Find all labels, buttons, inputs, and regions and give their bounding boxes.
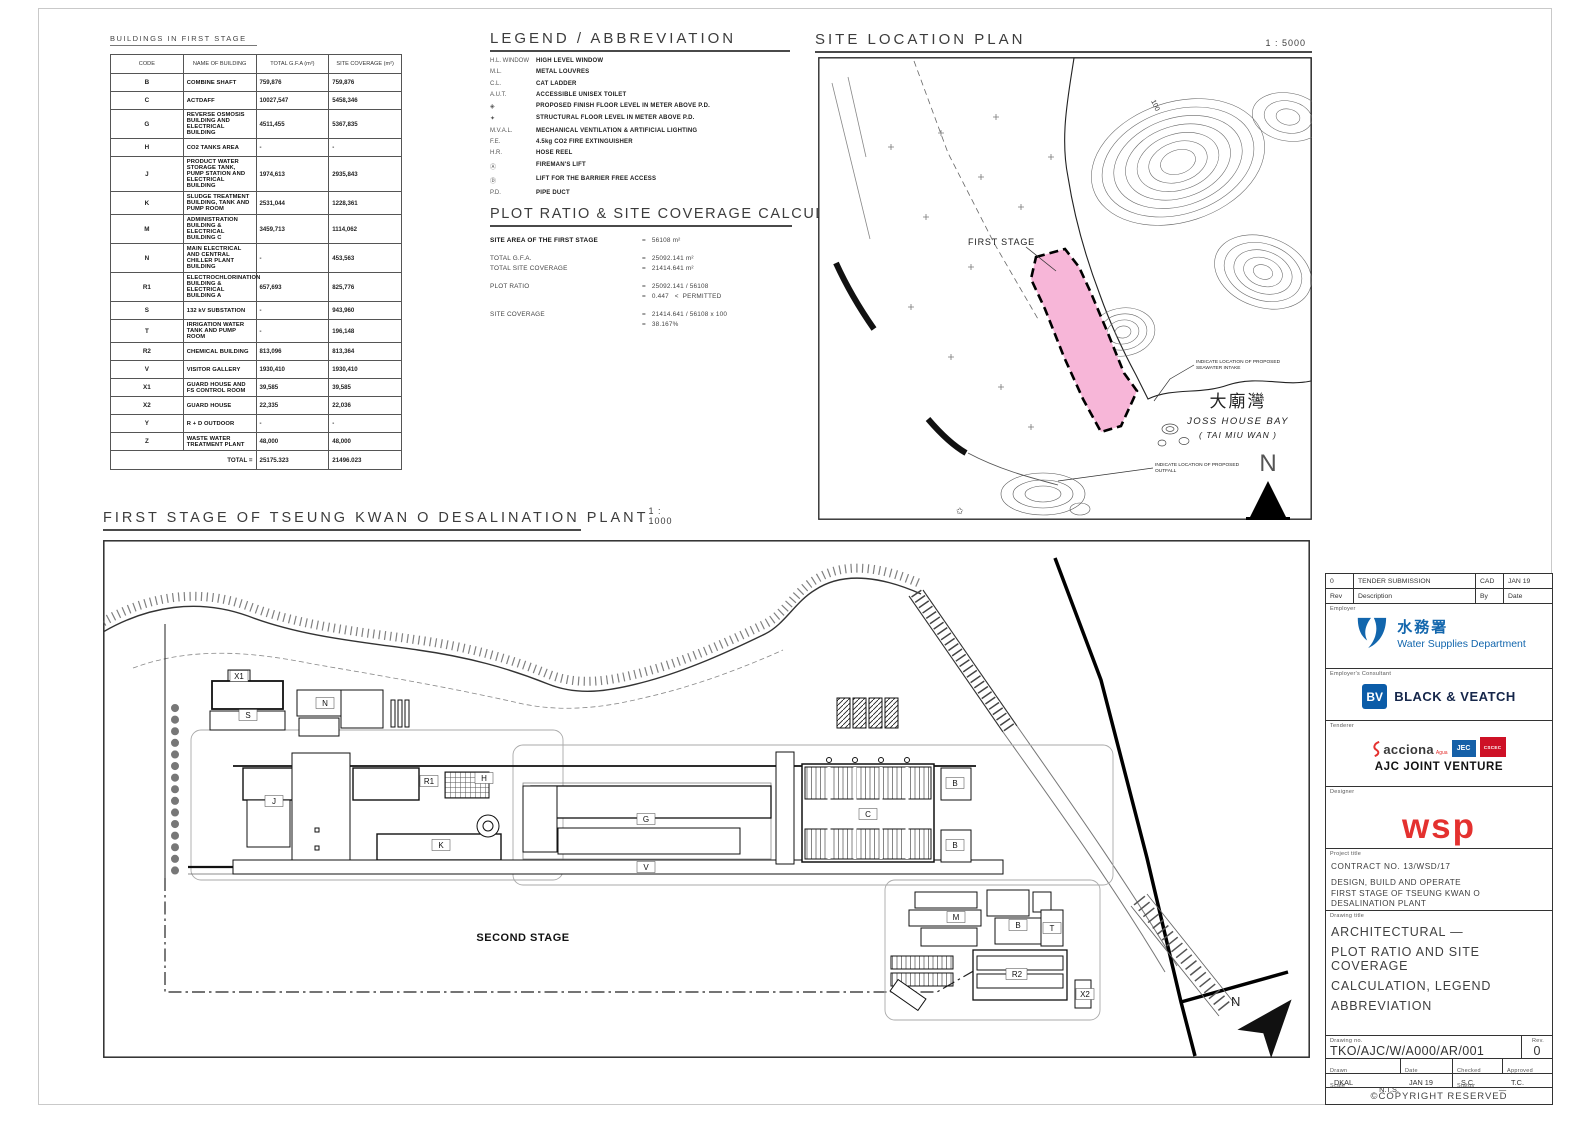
meta-row-2: Scale N.T.S. Status — xyxy=(1326,1074,1552,1088)
intake-note-line1: INDICATE LOCATION OF PROPOSED xyxy=(1196,359,1281,365)
calc-label: SITE COVERAGE xyxy=(490,311,642,318)
legend-title: LEGEND / ABBREVIATION xyxy=(490,30,736,47)
building-name: ELECTROCHLORINATION BUILDING & ELECTRICA… xyxy=(183,273,256,302)
plan-label-h: H xyxy=(481,774,487,783)
building-code: M xyxy=(111,215,184,244)
project-line3: DESALINATION PLANT xyxy=(1331,899,1552,908)
table-row: Z WASTE WATER TREATMENT PLANT 48,000 48,… xyxy=(111,433,402,451)
plan-label-m: M xyxy=(953,913,960,922)
drawn-label: Drawn xyxy=(1326,1066,1347,1074)
drawing-title-line1: ARCHITECTURAL — xyxy=(1331,925,1552,939)
acciona-leaf-icon xyxy=(1372,741,1381,757)
building-gfa: - xyxy=(256,139,329,157)
legend-item: Ⓓ LIFT FOR THE BARRIER FREE ACCESS xyxy=(490,176,790,185)
employer-name-chinese: 水務署 xyxy=(1397,616,1526,637)
legend-abbr: ✦ xyxy=(490,115,536,122)
acciona-logo: acciona Agua xyxy=(1372,741,1447,757)
building-name: CHEMICAL BUILDING xyxy=(183,343,256,361)
building-code: B xyxy=(111,74,184,92)
outfall-note-line2: OUTFALL xyxy=(1155,468,1177,474)
building-m-1 xyxy=(915,892,977,908)
wsp-logo: wsp xyxy=(1326,807,1552,847)
site-location-plan-title: SITE LOCATION PLAN xyxy=(815,31,1025,48)
legend-abbr: M.V.A.L. xyxy=(490,128,536,134)
building-code: X2 xyxy=(111,397,184,415)
building-name: R + D OUTDOOR xyxy=(183,415,256,433)
building-coverage: 1114,062 xyxy=(329,215,402,244)
buildings-table-body: B COMBINE SHAFT 759,876 759,876 C ACTDAF… xyxy=(111,74,402,451)
building-j-2 xyxy=(247,800,290,847)
drawing-number-section: Drawing no. TKO/AJC/W/A000/AR/001 Rev. 0 xyxy=(1326,1036,1552,1059)
legend-desc: HIGH LEVEL WINDOW xyxy=(536,58,603,64)
north-base xyxy=(1246,517,1290,520)
calc-value: = 0.447 < PERMITTED xyxy=(642,293,721,300)
calc-value: = 56108 m² xyxy=(642,237,680,244)
building-code: S xyxy=(111,302,184,320)
project-title-label: Project title xyxy=(1326,849,1552,857)
legend-abbr: P.D. xyxy=(490,190,536,196)
building-name: SLUDGE TREATMENT BUILDING, TANK AND PUMP… xyxy=(183,192,256,215)
table-row: Y R + D OUTDOOR - - xyxy=(111,415,402,433)
building-coverage: 453,563 xyxy=(329,244,402,273)
rev-label: Rev. xyxy=(1522,1036,1552,1044)
legend-desc: PROPOSED FINISH FLOOR LEVEL IN METER ABO… xyxy=(536,103,710,110)
table-row: S 132 kV SUBSTATION - 943,960 xyxy=(111,302,402,320)
building-name: 132 kV SUBSTATION xyxy=(183,302,256,320)
approved-label: Approved xyxy=(1503,1066,1533,1074)
legend-item: M.V.A.L. MECHANICAL VENTILATION & ARTIFI… xyxy=(490,128,790,134)
desc-col-label: Description xyxy=(1354,589,1476,604)
building-coverage: 48,000 xyxy=(329,433,402,451)
building-code: G xyxy=(111,110,184,139)
employer-section: Employer 水務署 Water Supplies Department xyxy=(1326,604,1552,669)
table-row: R1 ELECTROCHLORINATION BUILDING & ELECTR… xyxy=(111,273,402,302)
building-code: X1 xyxy=(111,379,184,397)
bay-name-chinese: 大廟灣 xyxy=(1210,392,1267,411)
jec-logo: JEC xyxy=(1452,740,1476,757)
acciona-agua: Agua xyxy=(1436,750,1448,756)
plan-label-r1: R1 xyxy=(424,777,435,786)
buildings-table: CODE NAME OF BUILDING TOTAL G.F.A (m²) S… xyxy=(110,54,402,470)
drawing-title-line4: ABBREVIATION xyxy=(1331,999,1552,1013)
legend-abbr: C.L. xyxy=(490,81,536,87)
main-plan-scale: 1 : 1000 xyxy=(648,506,672,526)
bay-name-sub: ( TAI MIU WAN ) xyxy=(1199,430,1277,440)
main-plan-title: FIRST STAGE OF TSEUNG KWAN O DESALINATIO… xyxy=(103,510,648,526)
building-r1 xyxy=(353,768,419,800)
calc-row: TOTAL G.F.A. = 25092.141 m² xyxy=(490,255,800,262)
building-name: GUARD HOUSE AND FS CONTROL ROOM xyxy=(183,379,256,397)
intake-note-line2: SEAWATER INTAKE xyxy=(1196,365,1241,371)
col-gfa: TOTAL G.F.A (m²) xyxy=(256,55,329,74)
col-coverage: SITE COVERAGE (m²) xyxy=(329,55,402,74)
building-gfa: - xyxy=(256,302,329,320)
building-gfa: - xyxy=(256,320,329,343)
building-name: WASTE WATER TREATMENT PLANT xyxy=(183,433,256,451)
building-gfa: 813,096 xyxy=(256,343,329,361)
black-veatch-logo: BV xyxy=(1362,684,1387,709)
plan-label-j: J xyxy=(272,797,276,806)
legend-item: A.U.T. ACCESSIBLE UNISEX TOILET xyxy=(490,92,790,98)
checked-label: Checked xyxy=(1453,1066,1481,1074)
main-plan-header: FIRST STAGE OF TSEUNG KWAN O DESALINATIO… xyxy=(103,506,581,531)
building-c-band-top xyxy=(805,767,931,799)
building-c-left xyxy=(776,752,794,864)
plan-label-x1: X1 xyxy=(234,672,244,681)
table-row: T IRRIGATION WATER TANK AND PUMP ROOM - … xyxy=(111,320,402,343)
legend-desc: METAL LOUVRES xyxy=(536,69,589,75)
designer-label: Designer xyxy=(1326,787,1552,795)
project-line1: DESIGN, BUILD AND OPERATE xyxy=(1331,878,1552,887)
drawing-number: TKO/AJC/W/A000/AR/001 xyxy=(1326,1044,1521,1058)
table-row: M ADMINISTRATION BUILDING & ELECTRICAL B… xyxy=(111,215,402,244)
building-m-2 xyxy=(909,910,981,926)
table-row: N MAIN ELECTRICAL AND CENTRAL CHILLER PL… xyxy=(111,244,402,273)
plan-label-s: S xyxy=(245,711,250,720)
calc-label xyxy=(490,321,642,328)
building-g-lower xyxy=(558,828,740,854)
calc-label: PLOT RATIO xyxy=(490,283,642,290)
building-code: R1 xyxy=(111,273,184,302)
tenderer-name: AJC JOINT VENTURE xyxy=(1326,761,1552,773)
plan-label-x2: X2 xyxy=(1080,990,1090,999)
legend-item: H.L. WINDOW HIGH LEVEL WINDOW xyxy=(490,58,790,64)
date-col-label: Date xyxy=(1504,589,1552,604)
calc-value: = 25092.141 m² xyxy=(642,255,694,262)
calc-value: = 38.167% xyxy=(642,321,679,328)
plan-label-b1: B xyxy=(952,779,957,788)
building-code: Z xyxy=(111,433,184,451)
building-gfa: 39,585 xyxy=(256,379,329,397)
building-code: T xyxy=(111,320,184,343)
building-coverage: 196,148 xyxy=(329,320,402,343)
building-coverage: - xyxy=(329,415,402,433)
table-row: J PRODUCT WATER STORAGE TANK, PUMP STATI… xyxy=(111,157,402,192)
calc-value: = 21414.641 / 56108 x 100 xyxy=(642,311,727,318)
calc-value: = 25092.141 / 56108 xyxy=(642,283,709,290)
table-row: X2 GUARD HOUSE 22,335 22,036 xyxy=(111,397,402,415)
legend-desc: 4.5kg CO2 FIRE EXTINGUISHER xyxy=(536,139,633,145)
drawing-title-label: Drawing title xyxy=(1326,911,1552,919)
calc-label: TOTAL G.F.A. xyxy=(490,255,642,262)
legend-abbr: A.U.T. xyxy=(490,92,536,98)
plan-label-k: K xyxy=(438,841,444,850)
by-col-label: By xyxy=(1476,589,1504,604)
building-gfa: 1930,410 xyxy=(256,361,329,379)
plan-label-g: G xyxy=(643,815,649,824)
total-label: TOTAL = xyxy=(111,451,257,470)
site-location-plan-scale: 1 : 5000 xyxy=(1265,38,1306,48)
plan-label-b3: B xyxy=(1015,921,1020,930)
wsd-logo xyxy=(1352,616,1390,650)
revision-header-row: Rev Description By Date xyxy=(1326,589,1552,604)
building-coverage: 22,036 xyxy=(329,397,402,415)
building-code: J xyxy=(111,157,184,192)
copyright-row: ©COPYRIGHT RESERVED xyxy=(1326,1088,1552,1104)
building-coverage: 1930,410 xyxy=(329,361,402,379)
calc-row: SITE AREA OF THE FIRST STAGE = 56108 m² xyxy=(490,237,800,244)
table-row: V VISITOR GALLERY 1930,410 1930,410 xyxy=(111,361,402,379)
legend-desc: ACCESSIBLE UNISEX TOILET xyxy=(536,92,626,98)
rev-value: 0 xyxy=(1522,1044,1552,1058)
table-row: H CO2 TANKS AREA - - xyxy=(111,139,402,157)
building-gfa: 48,000 xyxy=(256,433,329,451)
calculation-rows: SITE AREA OF THE FIRST STAGE = 56108 m² … xyxy=(490,237,800,328)
total-gfa: 25175.323 xyxy=(256,451,329,470)
building-b-2 xyxy=(1033,892,1051,912)
rev-number: 0 xyxy=(1326,574,1354,589)
project-line2: FIRST STAGE OF TSEUNG KWAN O xyxy=(1331,889,1552,898)
rev-col-label: Rev xyxy=(1326,589,1354,604)
building-code: Y xyxy=(111,415,184,433)
building-c-band-bottom xyxy=(805,829,931,859)
designer-section: Designer wsp xyxy=(1326,787,1552,849)
legend-item: P.D. PIPE DUCT xyxy=(490,190,790,196)
building-coverage: 943,960 xyxy=(329,302,402,320)
drawing-title-section: Drawing title ARCHITECTURAL — PLOT RATIO… xyxy=(1326,911,1552,1036)
employer-label: Employer xyxy=(1326,604,1552,612)
building-gfa: 4511,455 xyxy=(256,110,329,139)
building-coverage: 825,776 xyxy=(329,273,402,302)
parking-strip-1 xyxy=(891,956,953,969)
calc-value: = 21414.641 m² xyxy=(642,265,694,272)
building-code: R2 xyxy=(111,343,184,361)
rev-description: TENDER SUBMISSION xyxy=(1354,574,1476,589)
buildings-table-title: BUILDINGS IN FIRST STAGE xyxy=(110,34,257,46)
table-row: X1 GUARD HOUSE AND FS CONTROL ROOM 39,58… xyxy=(111,379,402,397)
legend-abbr: H.L. WINDOW xyxy=(490,58,536,64)
table-row: C ACTDAFF 10027,547 5458,346 xyxy=(111,92,402,110)
building-j-3 xyxy=(292,753,350,868)
calculation-section: PLOT RATIO & SITE COVERAGE CALCULATION: … xyxy=(490,206,800,328)
main-site-plan: X1 S N J R1 H K G V C B B M B T R2 X2 SE… xyxy=(103,540,1310,1058)
legend-desc: CAT LADDER xyxy=(536,81,577,87)
calc-row: SITE COVERAGE = 21414.641 / 56108 x 100 xyxy=(490,311,800,318)
legend-abbr: Ⓓ xyxy=(490,176,536,185)
plan-label-v: V xyxy=(643,863,649,872)
calc-row: = 38.167% xyxy=(490,321,800,328)
revision-entry-row: 0 TENDER SUBMISSION CAD JAN 19 xyxy=(1326,574,1552,589)
legend-desc: FIREMAN'S LIFT xyxy=(536,162,586,171)
table-row: K SLUDGE TREATMENT BUILDING, TANK AND PU… xyxy=(111,192,402,215)
building-b-1 xyxy=(987,890,1029,916)
building-coverage: 5458,346 xyxy=(329,92,402,110)
star-marker: ✩ xyxy=(956,506,964,516)
employer-name-english: Water Supplies Department xyxy=(1397,638,1526,650)
tenderer-label: Tenderer xyxy=(1326,721,1552,729)
legend-abbr: Ⓐ xyxy=(490,162,536,171)
calc-label: SITE AREA OF THE FIRST STAGE xyxy=(490,237,642,244)
legend-item: ✦ STRUCTURAL FLOOR LEVEL IN METER ABOVE … xyxy=(490,115,790,122)
building-n-2 xyxy=(341,690,383,728)
cscec-logo: CSCEC xyxy=(1480,737,1506,757)
building-gfa: 3459,713 xyxy=(256,215,329,244)
legend-item: Ⓐ FIREMAN'S LIFT xyxy=(490,162,790,171)
plan-label-r2: R2 xyxy=(1012,970,1023,979)
drawing-no-label: Drawing no. xyxy=(1326,1036,1521,1044)
calc-label xyxy=(490,293,642,300)
building-coverage: 759,876 xyxy=(329,74,402,92)
building-gfa: 22,335 xyxy=(256,397,329,415)
consultant-section: Employer's Consultant BV BLACK & VEATCH xyxy=(1326,669,1552,721)
building-gfa: 2531,044 xyxy=(256,192,329,215)
building-name: REVERSE OSMOSIS BUILDING AND ELECTRICAL … xyxy=(183,110,256,139)
legend-desc: HOSE REEL xyxy=(536,150,572,156)
first-stage-label: FIRST STAGE xyxy=(968,237,1035,247)
building-code: N xyxy=(111,244,184,273)
table-row: G REVERSE OSMOSIS BUILDING AND ELECTRICA… xyxy=(111,110,402,139)
building-name: PRODUCT WATER STORAGE TANK, PUMP STATION… xyxy=(183,157,256,192)
north-letter: N xyxy=(1259,450,1276,477)
building-coverage: 1228,361 xyxy=(329,192,402,215)
building-name: ACTDAFF xyxy=(183,92,256,110)
col-name: NAME OF BUILDING xyxy=(183,55,256,74)
legend-abbr: M.L. xyxy=(490,69,536,75)
calc-label: TOTAL SITE COVERAGE xyxy=(490,265,642,272)
building-name: COMBINE SHAFT xyxy=(183,74,256,92)
calc-row: = 0.447 < PERMITTED xyxy=(490,293,800,300)
building-gfa: 759,876 xyxy=(256,74,329,92)
legend-item: M.L. METAL LOUVRES xyxy=(490,69,790,75)
building-name: CO2 TANKS AREA xyxy=(183,139,256,157)
plan-label-c: C xyxy=(865,810,871,819)
second-stage-label: SECOND STAGE xyxy=(476,932,569,944)
building-r2-band1 xyxy=(977,956,1063,970)
plan-label-t: T xyxy=(1050,924,1055,933)
building-gfa: - xyxy=(256,244,329,273)
building-code: K xyxy=(111,192,184,215)
building-coverage: 5367,835 xyxy=(329,110,402,139)
bay-name-english: JOSS HOUSE BAY xyxy=(1186,416,1289,427)
buildings-table-section: BUILDINGS IN FIRST STAGE CODE NAME OF BU… xyxy=(110,34,402,470)
title-block: 0 TENDER SUBMISSION CAD JAN 19 Rev Descr… xyxy=(1325,573,1553,1105)
building-n-3 xyxy=(299,718,339,736)
building-s-upper xyxy=(212,681,283,709)
col-code: CODE xyxy=(111,55,184,74)
site-location-plan-map: 100 ✩ FIRST STAGE INDICATE LOCATION OF P… xyxy=(818,57,1312,520)
plan-label-b2: B xyxy=(952,841,957,850)
legend-item: F.E. 4.5kg CO2 FIRE EXTINGUISHER xyxy=(490,139,790,145)
building-coverage: 2935,843 xyxy=(329,157,402,192)
legend-item: H.R. HOSE REEL xyxy=(490,150,790,156)
calc-row: TOTAL SITE COVERAGE = 21414.641 m² xyxy=(490,265,800,272)
building-code: C xyxy=(111,92,184,110)
building-g-upper xyxy=(531,786,771,818)
building-gfa: - xyxy=(256,415,329,433)
rev-by: CAD xyxy=(1476,574,1504,589)
drawing-title-line3: CALCULATION, LEGEND xyxy=(1331,979,1552,993)
contract-number: CONTRACT NO. 13/WSD/17 xyxy=(1331,862,1552,871)
building-name: IRRIGATION WATER TANK AND PUMP ROOM xyxy=(183,320,256,343)
building-code: H xyxy=(111,139,184,157)
table-row: B COMBINE SHAFT 759,876 759,876 xyxy=(111,74,402,92)
meta-row-1: Drawn DKAL Date JAN 19 Checked S.C. Appr… xyxy=(1326,1059,1552,1074)
site-location-plan-header: SITE LOCATION PLAN 1 : 5000 xyxy=(815,31,1312,53)
legend-desc: PIPE DUCT xyxy=(536,190,570,196)
calc-row: PLOT RATIO = 25092.141 / 56108 xyxy=(490,283,800,290)
legend-item: ◈ PROPOSED FINISH FLOOR LEVEL IN METER A… xyxy=(490,103,790,110)
building-gfa: 1974,613 xyxy=(256,157,329,192)
building-m-3 xyxy=(921,928,977,946)
rev-date: JAN 19 xyxy=(1504,574,1552,589)
consultant-name: BLACK & VEATCH xyxy=(1394,689,1516,704)
outfall-note-line1: INDICATE LOCATION OF PROPOSED xyxy=(1155,462,1240,468)
project-title-section: Project title CONTRACT NO. 13/WSD/17 DES… xyxy=(1326,849,1552,911)
legend-section: LEGEND / ABBREVIATION H.L. WINDOW HIGH L… xyxy=(490,30,790,196)
consultant-label: Employer's Consultant xyxy=(1326,669,1552,677)
legend-abbr: F.E. xyxy=(490,139,536,145)
building-name: MAIN ELECTRICAL AND CENTRAL CHILLER PLAN… xyxy=(183,244,256,273)
drawing-sheet: { "colors": { "site_pink": "#F7B6D8", "w… xyxy=(0,0,1587,1123)
building-coverage: 39,585 xyxy=(329,379,402,397)
acciona-word: acciona xyxy=(1383,742,1434,757)
table-row: R2 CHEMICAL BUILDING 813,096 813,364 xyxy=(111,343,402,361)
building-gfa: 657,693 xyxy=(256,273,329,302)
building-name: GUARD HOUSE xyxy=(183,397,256,415)
legend-item: C.L. CAT LADDER xyxy=(490,81,790,87)
building-code: V xyxy=(111,361,184,379)
legend-desc: MECHANICAL VENTILATION & ARTIFICIAL LIGH… xyxy=(536,128,697,134)
total-coverage: 21496.023 xyxy=(329,451,402,470)
building-name: ADMINISTRATION BUILDING & ELECTRICAL BUI… xyxy=(183,215,256,244)
legend-desc: STRUCTURAL FLOOR LEVEL IN METER ABOVE P.… xyxy=(536,115,695,122)
date-label: Date xyxy=(1401,1066,1418,1074)
legend-abbr: H.R. xyxy=(490,150,536,156)
copyright-text: ©COPYRIGHT RESERVED xyxy=(1326,1088,1552,1102)
table-total-row: TOTAL = 25175.323 21496.023 xyxy=(111,451,402,470)
legend-desc: LIFT FOR THE BARRIER FREE ACCESS xyxy=(536,176,656,185)
building-g-left xyxy=(523,786,557,852)
building-gfa: 10027,547 xyxy=(256,92,329,110)
building-coverage: - xyxy=(329,139,402,157)
legend-list: H.L. WINDOW HIGH LEVEL WINDOW M.L. METAL… xyxy=(490,58,790,196)
drawing-title-line2: PLOT RATIO AND SITE COVERAGE xyxy=(1331,945,1552,973)
plan-north-letter: N xyxy=(1231,994,1240,1009)
plan-label-n: N xyxy=(322,699,328,708)
building-name: VISITOR GALLERY xyxy=(183,361,256,379)
tenderer-section: Tenderer acciona Agua JEC CSCEC AJC JOIN… xyxy=(1326,721,1552,787)
building-coverage: 813,364 xyxy=(329,343,402,361)
legend-abbr: ◈ xyxy=(490,103,536,110)
